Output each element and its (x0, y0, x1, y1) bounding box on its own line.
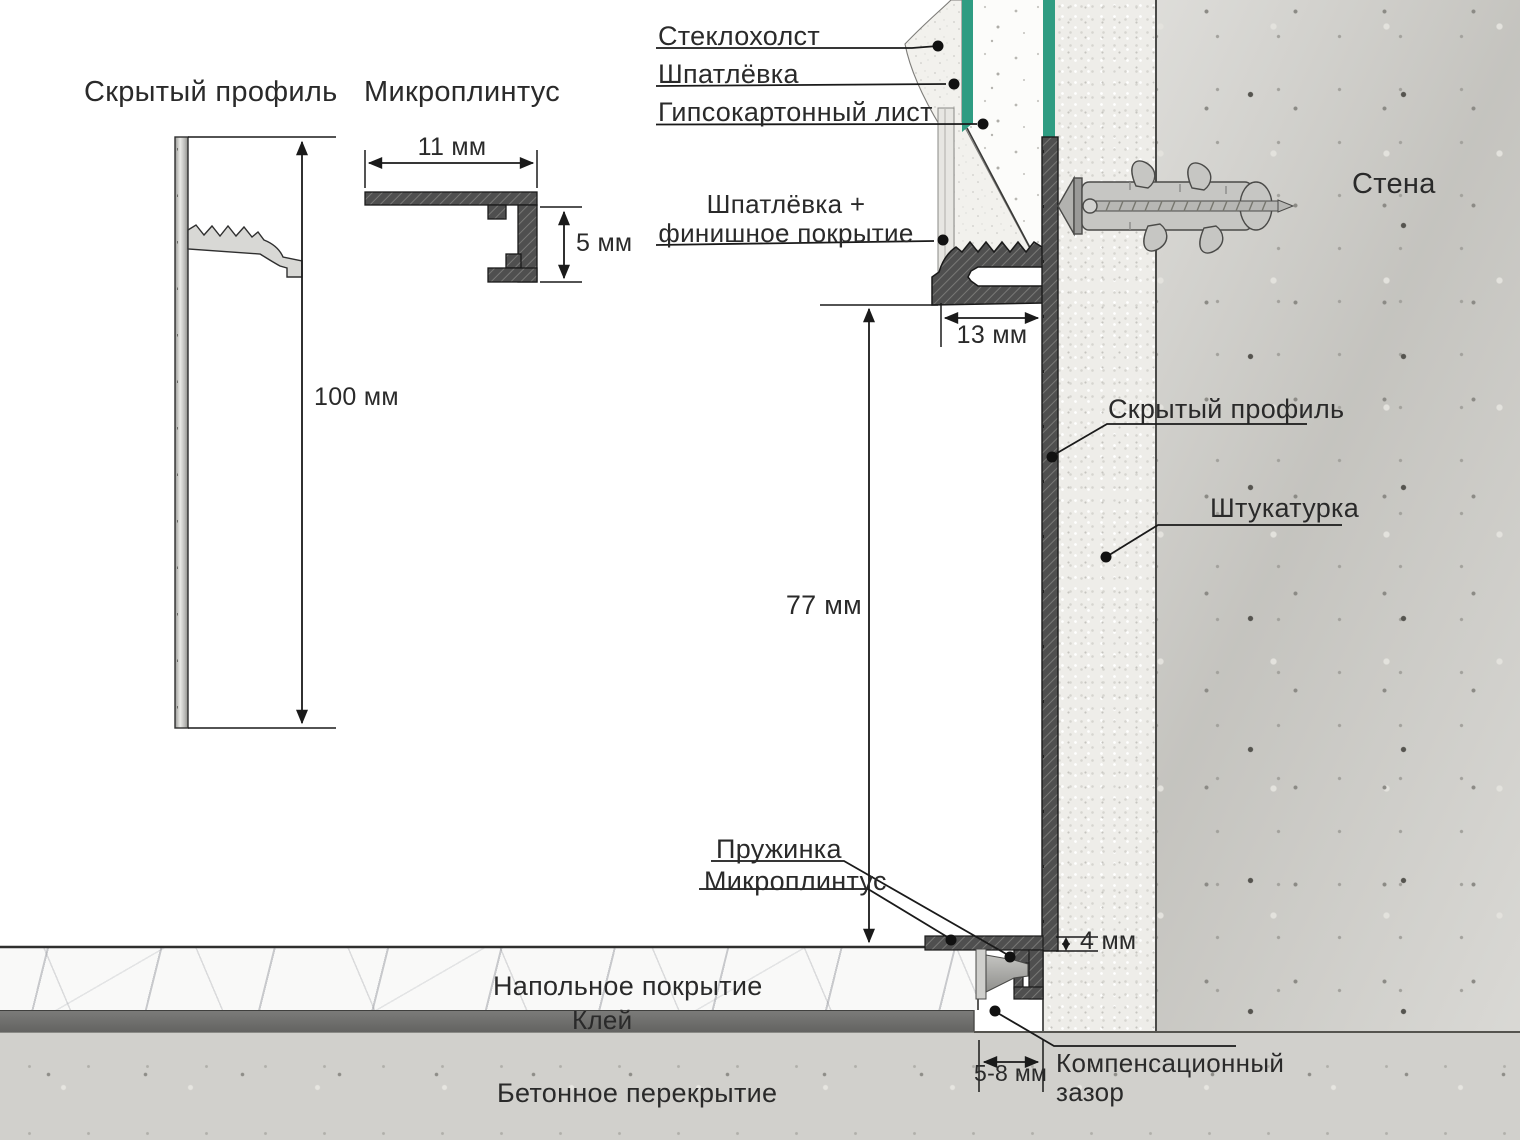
dim-13mm-label: 13 мм (941, 321, 1043, 349)
diagram-overlay (0, 0, 1520, 1140)
micro-skirting-profile-drawing (365, 192, 537, 282)
dowel-barb (1144, 224, 1167, 251)
micro-skirting-title: Микроплинтус (364, 76, 560, 108)
label-compensation-gap-line2: зазор (1056, 1078, 1284, 1107)
label-plaster: Штукатурка (1210, 493, 1359, 523)
label-glue: Клей (572, 1006, 633, 1035)
dowel-barb (1200, 226, 1223, 253)
dowel-barb (1132, 161, 1155, 188)
dim-5-8mm-label: 5-8 мм (974, 1061, 1046, 1087)
hidden-profile-section (932, 137, 1058, 951)
dim-100mm-label: 100 мм (314, 383, 399, 411)
label-putty-finish-line2: финишное покрытие (648, 219, 924, 248)
profile-bar (1042, 137, 1058, 951)
label-spring: Пружинка (716, 834, 842, 864)
label-putty: Шпатлёвка (658, 59, 799, 89)
profile-clip-arm (188, 225, 302, 277)
dowel-barb (1188, 163, 1211, 190)
label-compensation-gap: Компенсационный зазор (1056, 1049, 1284, 1107)
label-putty-finish: Шпатлёвка + финишное покрытие (648, 190, 924, 248)
label-glass-fiber: Стеклохолст (658, 21, 820, 51)
screw (1083, 199, 1293, 213)
dim-4mm-label: 4 мм (1080, 927, 1136, 955)
dim-11mm-label: 11 мм (400, 133, 504, 161)
label-wall: Стена (1352, 168, 1436, 200)
hidden-profile-drawing (175, 137, 336, 728)
dimension-100mm (188, 137, 336, 728)
label-drywall-sheet: Гипсокартонный лист (658, 97, 933, 127)
label-hidden-profile: Скрытый профиль (1108, 394, 1344, 424)
diagram-page: Скрытый профиль Микроплинтус 11 мм 5 мм … (0, 0, 1520, 1140)
label-putty-finish-line1: Шпатлёвка + (648, 190, 924, 219)
label-concrete-slab: Бетонное перекрытие (497, 1078, 777, 1108)
label-floor-covering: Напольное покрытие (493, 971, 763, 1001)
label-compensation-gap-line1: Компенсационный (1056, 1049, 1284, 1078)
dim-5mm-label: 5 мм (576, 229, 632, 257)
label-micro-skirting: Микроплинтус (704, 866, 887, 896)
left-profile-title: Скрытый профиль (84, 76, 338, 108)
dim-77mm-label: 77 мм (778, 590, 862, 620)
screw-head-cone (1058, 178, 1074, 234)
wall-anchor (1058, 161, 1293, 253)
